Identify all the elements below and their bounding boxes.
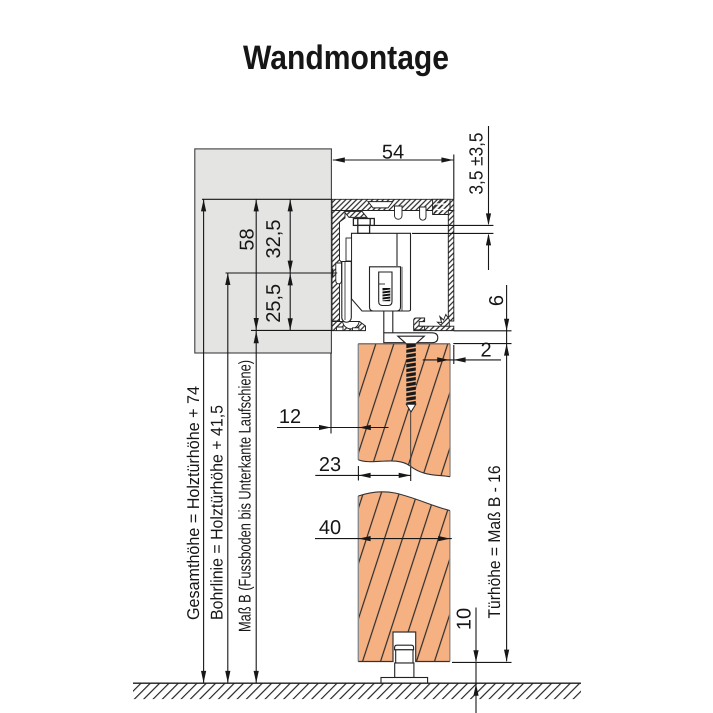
svg-text:Maß B (Fussboden bis Unterkant: Maß B (Fussboden bis Unterkante Laufschi… <box>236 360 255 632</box>
svg-text:Gesamthöhe = Holztürhöhe + 74: Gesamthöhe = Holztürhöhe + 74 <box>184 386 203 620</box>
svg-text:6: 6 <box>486 295 508 306</box>
svg-text:12: 12 <box>279 406 301 428</box>
svg-text:23: 23 <box>319 454 341 476</box>
svg-text:Wandmontage: Wandmontage <box>243 39 449 77</box>
svg-text:32,5: 32,5 <box>263 220 285 259</box>
svg-text:Bohrlinie = Holztürhöhe + 41,5: Bohrlinie = Holztürhöhe + 41,5 <box>208 405 227 620</box>
svg-text:58: 58 <box>237 228 259 250</box>
svg-text:10: 10 <box>454 608 476 630</box>
svg-text:25,5: 25,5 <box>263 284 285 323</box>
svg-text:3,5 ±3,5: 3,5 ±3,5 <box>467 133 488 195</box>
svg-text:2: 2 <box>480 340 491 362</box>
svg-text:40: 40 <box>319 517 341 539</box>
svg-text:Türhöhe = Maß B - 16: Türhöhe = Maß B - 16 <box>485 466 504 619</box>
svg-text:54: 54 <box>382 142 404 164</box>
